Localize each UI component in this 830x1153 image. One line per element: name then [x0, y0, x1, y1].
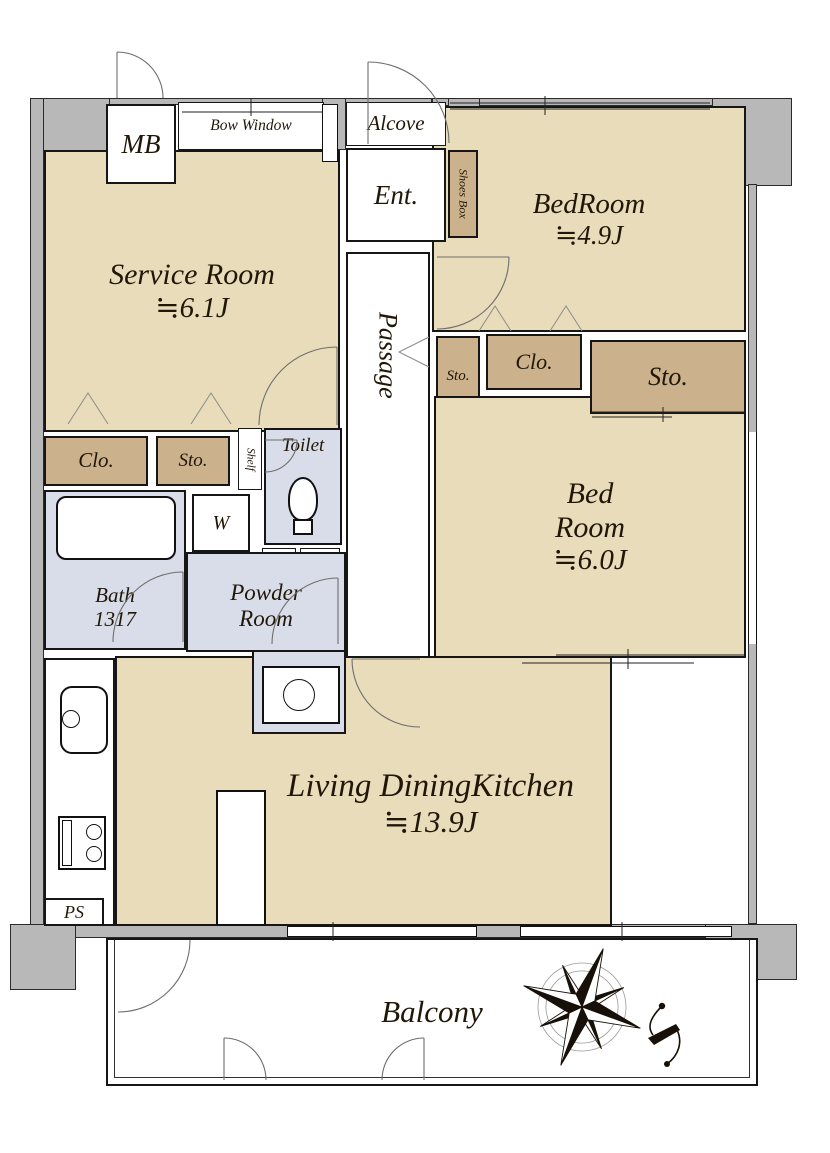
- bedroom-main-name-2: Room: [555, 511, 625, 545]
- window-ldk-right: [520, 926, 732, 937]
- ldk: Living DiningKitchen ≒13.9J: [115, 656, 612, 926]
- shelf-label: Shelf: [244, 448, 257, 471]
- alcove-label: Alcove: [367, 112, 424, 136]
- washbasin-bowl-icon: [283, 679, 315, 711]
- bow-window-side-panel: [322, 104, 338, 162]
- passage-label: Passage: [373, 312, 402, 399]
- bathtub-icon: [56, 496, 176, 560]
- stove-grill-icon: [62, 820, 72, 866]
- bedroom-main-name-1: Bed: [567, 477, 614, 511]
- storage-bedroom-main-label: Sto.: [648, 362, 688, 391]
- entrance-label: Ent.: [374, 180, 418, 210]
- storage-passage-label: Sto.: [447, 368, 470, 385]
- stove-burner-top-icon: [86, 824, 102, 840]
- bedroom-small-size: ≒4.9J: [555, 220, 623, 250]
- stove-burner-bottom-icon: [86, 846, 102, 862]
- toilet-bowl-icon: [288, 477, 318, 521]
- alcove: Alcove: [346, 102, 446, 146]
- pipe-space-lower: PS: [44, 898, 104, 926]
- balcony-inner-rail: [114, 940, 750, 1078]
- storage-bedroom-main: Sto.: [590, 340, 746, 414]
- shoes-box-label: Shoes Box: [456, 169, 469, 219]
- service-room-size: ≒6.1J: [155, 292, 228, 324]
- bow-window-label: Bow Window: [210, 117, 291, 134]
- floor-plan: Balcony Service Room ≒6.1J BedRoom ≒4.9J…: [0, 0, 830, 1153]
- bath-name: Bath: [95, 584, 135, 608]
- window-bedroom-main-right: [748, 432, 757, 644]
- shoes-box: Shoes Box: [448, 150, 478, 238]
- bedroom-main: Bed Room ≒6.0J: [434, 396, 746, 658]
- powder-room-name-1: Powder: [230, 580, 302, 606]
- ldk-size: ≒13.9J: [384, 805, 478, 840]
- kitchen-faucet-icon: [62, 710, 80, 728]
- shelf: Shelf: [238, 428, 262, 490]
- storage-service: Sto.: [156, 436, 230, 486]
- bedroom-small: BedRoom ≒4.9J: [432, 106, 746, 332]
- powder-room: Powder Room: [186, 552, 346, 652]
- entrance: Ent.: [346, 148, 446, 242]
- washer-box: W: [192, 494, 250, 552]
- storage-service-label: Sto.: [178, 450, 207, 471]
- wall-left: [30, 98, 44, 936]
- bath-size: 1317: [94, 608, 136, 632]
- toilet-label: Toilet: [282, 435, 325, 456]
- bedroom-main-size: ≒6.0J: [553, 544, 626, 576]
- closet-service: Clo.: [44, 436, 148, 486]
- closet-service-label: Clo.: [78, 449, 114, 473]
- washer-label: W: [213, 512, 230, 534]
- powder-room-name-2: Room: [239, 606, 293, 632]
- bow-window: Bow Window: [178, 102, 324, 150]
- service-room-name: Service Room: [109, 258, 275, 292]
- kitchen-counter: [216, 790, 266, 926]
- wall-bottom-left-block: [10, 924, 76, 990]
- passage: Passage: [346, 252, 430, 666]
- balcony: Balcony: [106, 938, 758, 1086]
- service-room: Service Room ≒6.1J: [44, 150, 340, 432]
- closet-bedroom-small: Clo.: [486, 334, 582, 390]
- window-ldk-left: [287, 926, 477, 937]
- toilet-tank-icon: [293, 519, 313, 535]
- bedroom-small-name: BedRoom: [533, 188, 646, 220]
- mb-box: MB: [106, 104, 176, 184]
- mb-label: MB: [122, 129, 161, 159]
- closet-bedroom-small-label: Clo.: [515, 350, 552, 375]
- ldk-name: Living DiningKitchen: [287, 768, 574, 805]
- pipe-space-lower-label: PS: [64, 902, 84, 922]
